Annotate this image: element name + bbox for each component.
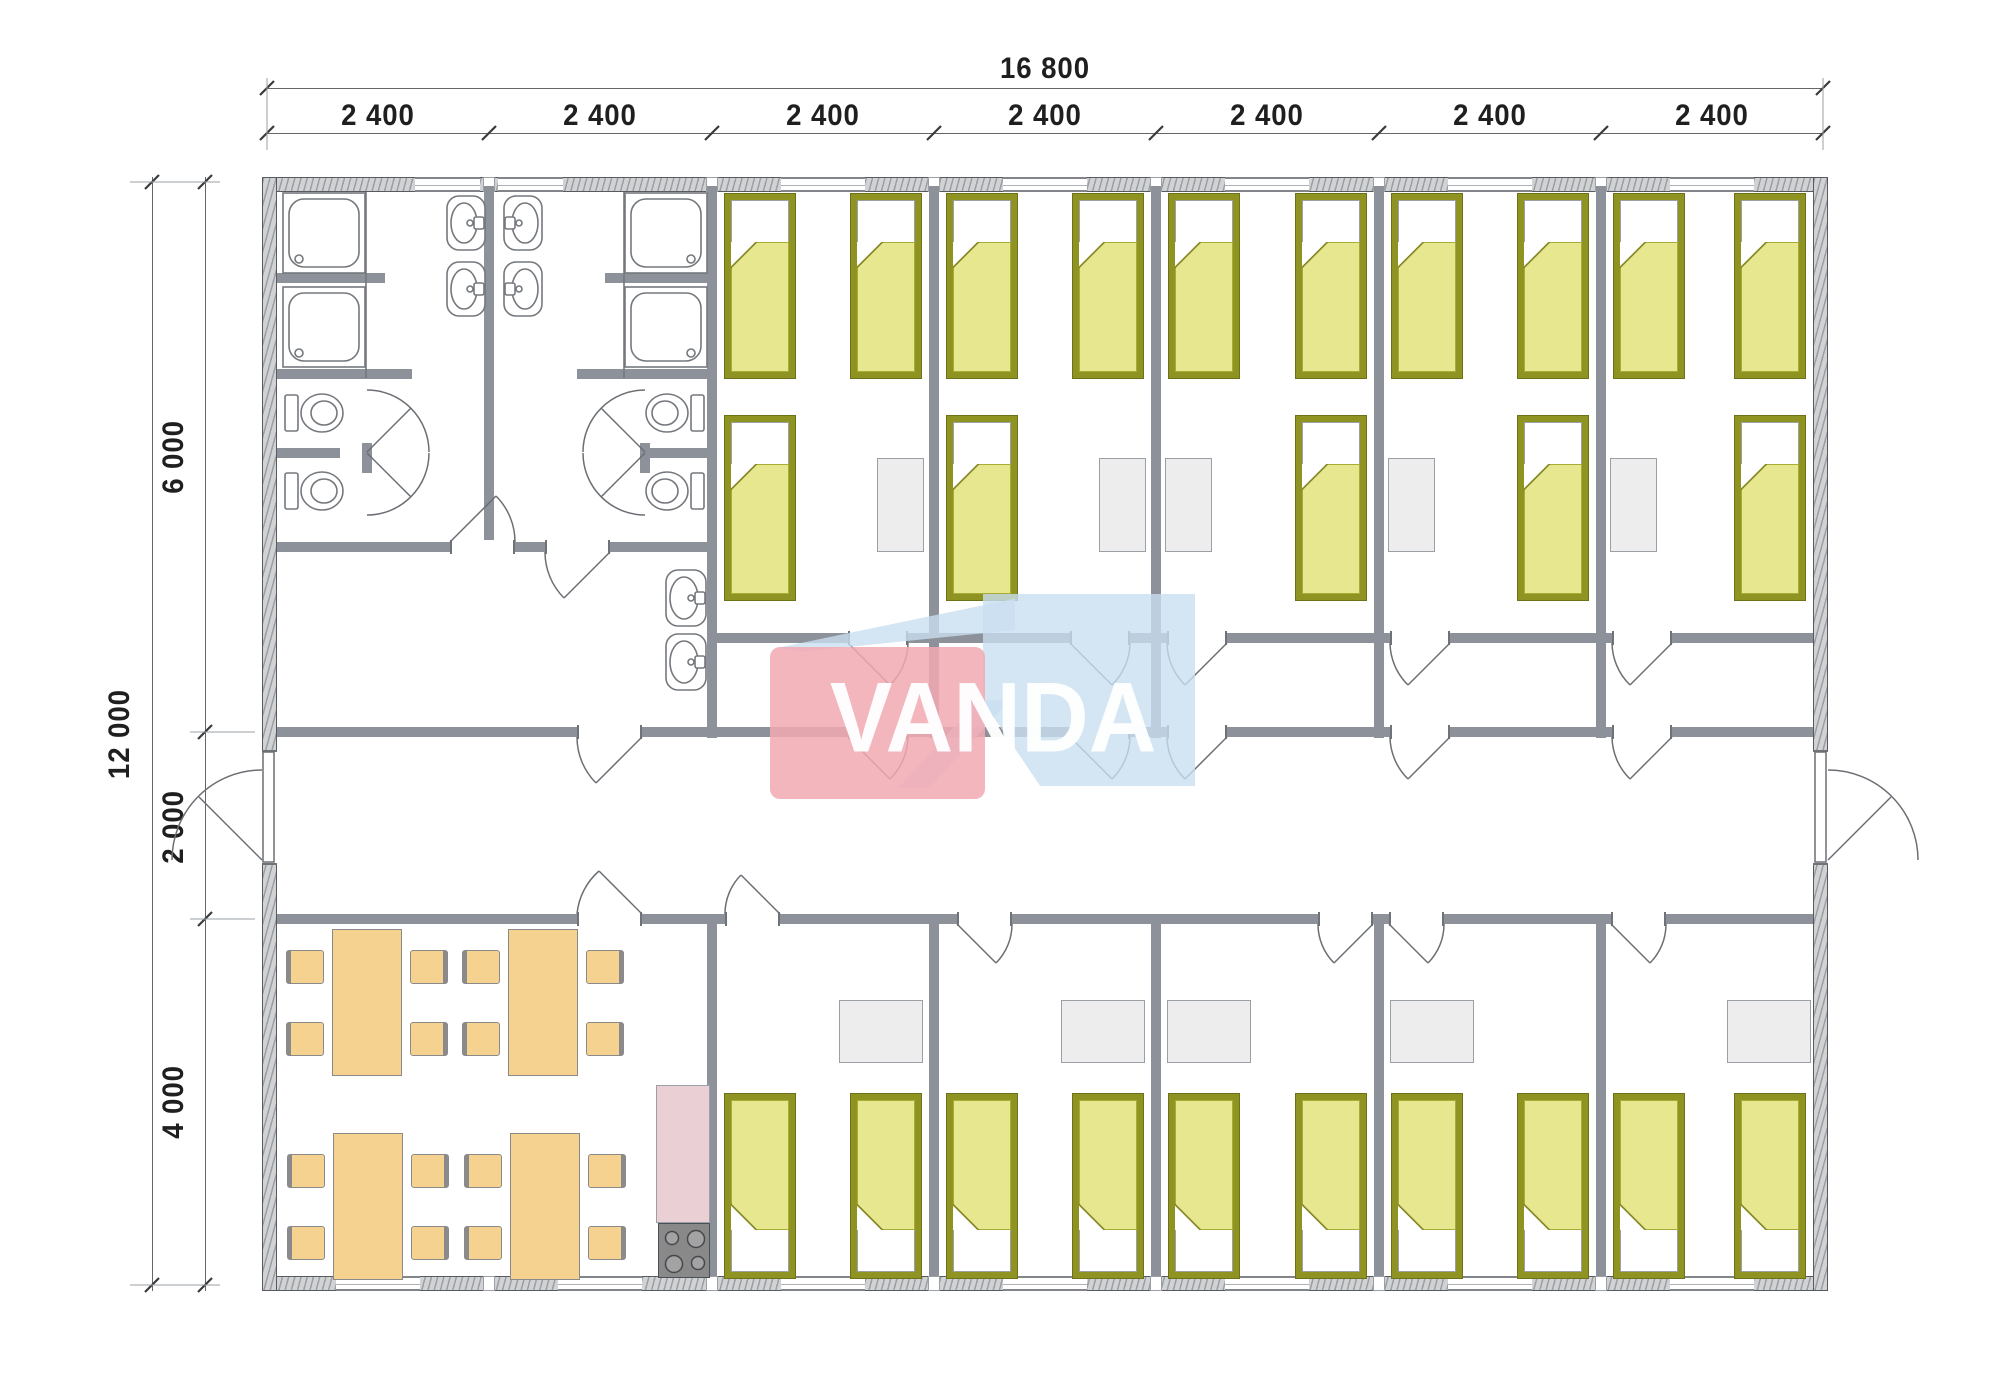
logo-watermark: VANDA bbox=[765, 590, 1210, 795]
logo-blue-shape bbox=[780, 594, 1015, 652]
stove-burners bbox=[666, 1231, 705, 1273]
shower-stall bbox=[283, 193, 707, 367]
floor-plan-page: { "drawing": { "type": "architectural fl… bbox=[0, 0, 2000, 1391]
toilet bbox=[285, 394, 704, 510]
logo-text: VANDA bbox=[779, 662, 1207, 775]
